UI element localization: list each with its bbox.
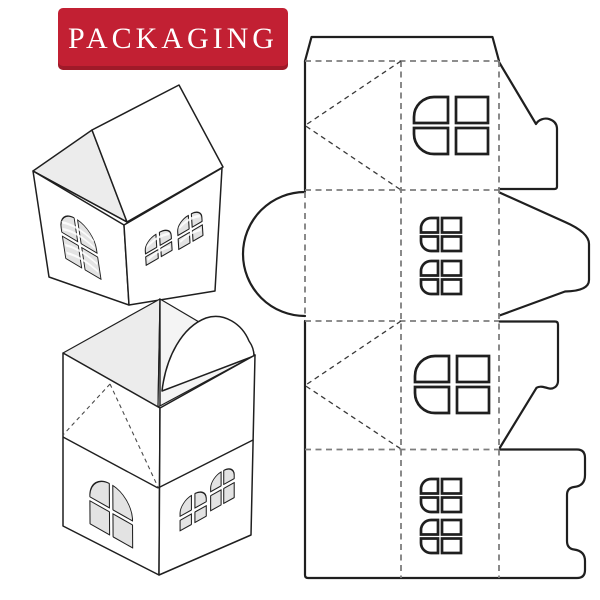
window-pane-cut bbox=[415, 356, 449, 382]
window-pane-cut bbox=[442, 261, 461, 276]
open-house-box-illustration bbox=[63, 299, 255, 575]
window-pane-cut bbox=[442, 218, 461, 233]
window-pane-cut bbox=[442, 539, 461, 554]
window-cutout-small-1 bbox=[421, 218, 461, 251]
top-flap-cut bbox=[305, 37, 499, 61]
window-pane-cut bbox=[442, 280, 461, 295]
illustration-canvas bbox=[0, 0, 600, 600]
window-pane-cut bbox=[442, 479, 461, 494]
window-pane-cut bbox=[457, 387, 489, 413]
window-pane-cut bbox=[414, 97, 448, 123]
window-pane-cut bbox=[421, 237, 438, 252]
window-cutout-large-1 bbox=[414, 97, 488, 154]
window-cutout-small-4 bbox=[421, 520, 461, 553]
window-cutout-small-2 bbox=[421, 261, 461, 294]
window-pane-cut bbox=[442, 498, 461, 513]
gable-fold-line bbox=[305, 61, 401, 190]
tuck-tab-1-cut bbox=[499, 62, 557, 189]
tuck-tab-2-cut bbox=[500, 322, 559, 448]
gable-fold-line bbox=[305, 321, 401, 449]
window-pane-cut bbox=[442, 520, 461, 535]
window-pane-cut bbox=[414, 128, 448, 154]
dieline-template bbox=[243, 37, 589, 578]
window-pane-cut bbox=[421, 539, 438, 554]
window-cutout-large-2 bbox=[415, 356, 489, 413]
window-pane-cut bbox=[421, 280, 438, 295]
window-pane-cut bbox=[421, 218, 438, 233]
window-pane-cut bbox=[421, 261, 438, 276]
window-pane-cut bbox=[421, 479, 438, 494]
window-pane-cut bbox=[457, 356, 489, 382]
window-pane-cut bbox=[421, 498, 438, 513]
bottom-panel-cut bbox=[305, 449, 585, 578]
window-pane-cut bbox=[456, 128, 488, 154]
window-pane-cut bbox=[442, 237, 461, 252]
window-cutout-small-3 bbox=[421, 479, 461, 512]
packaging-dieline-page: PACKAGING bbox=[0, 0, 600, 600]
window-pane-cut bbox=[415, 387, 449, 413]
glue-tab-cut bbox=[500, 193, 590, 316]
semicircle-flap-cut bbox=[243, 192, 305, 316]
window-pane-cut bbox=[421, 520, 438, 535]
window-pane-cut bbox=[456, 97, 488, 123]
closed-house-box-illustration bbox=[33, 85, 223, 305]
